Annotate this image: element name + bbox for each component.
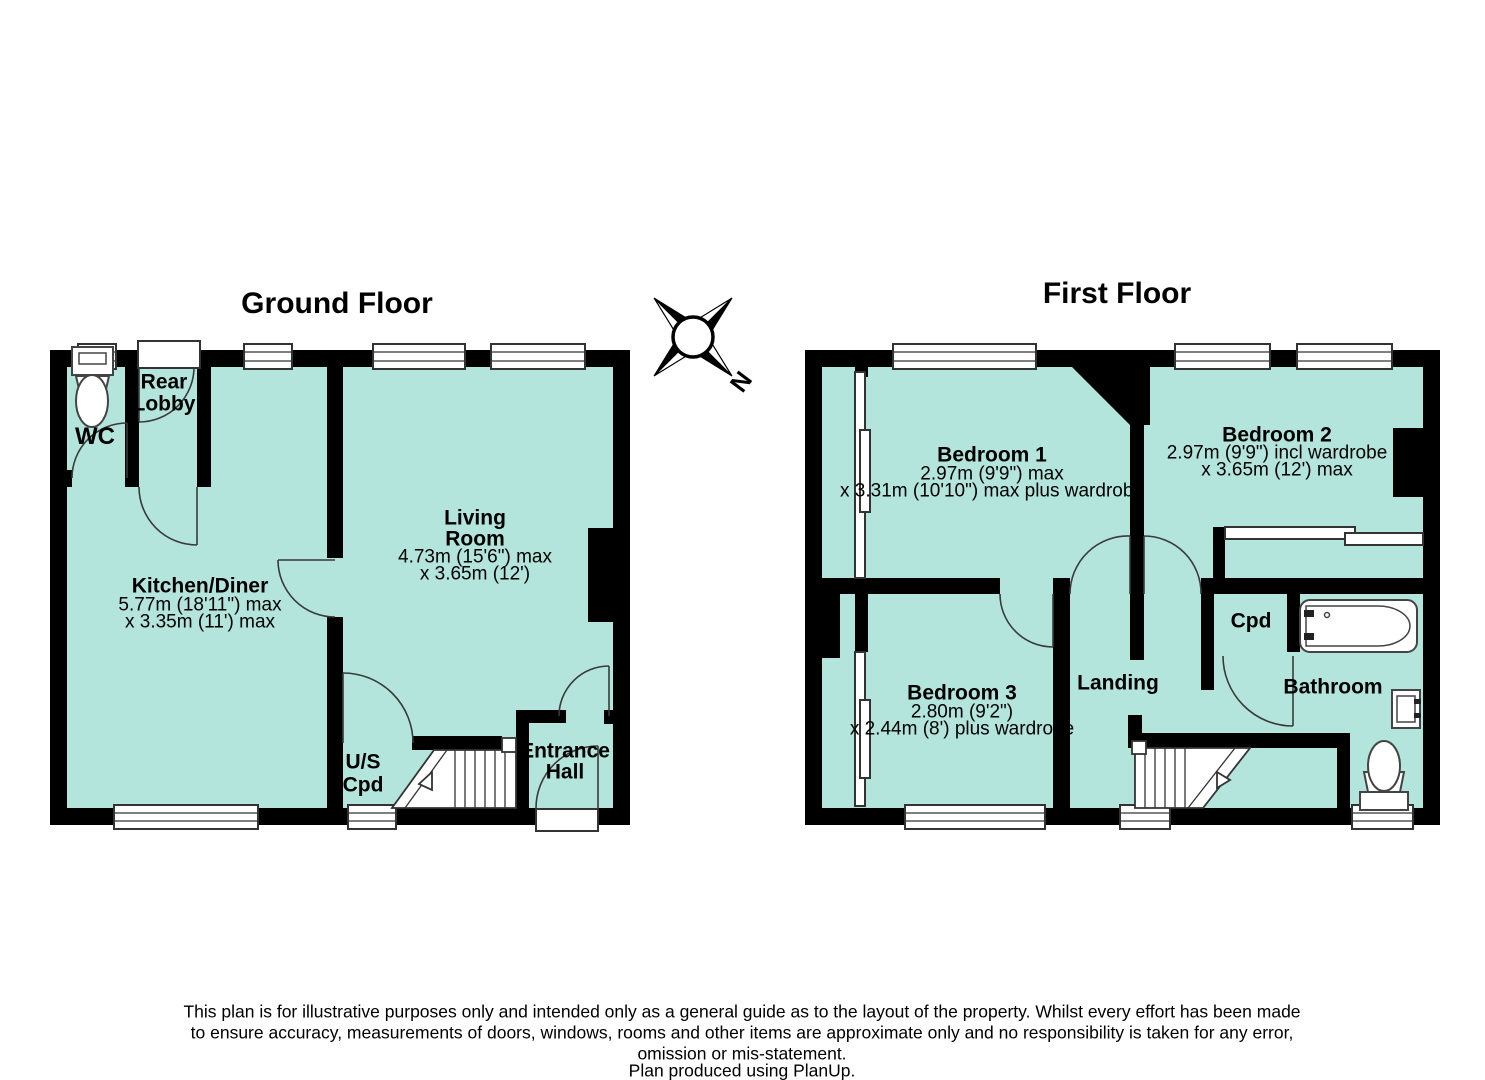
label-rear-lobby-2: Lobby [133, 394, 196, 415]
us-cpd-window [348, 805, 396, 829]
ff-stair-post [1132, 741, 1146, 754]
bedroom-3-dim2: x 2.44m (8') plus wardrobe [850, 720, 1074, 739]
floorplan-drawing [0, 0, 1485, 1080]
living-room-window-2 [491, 344, 585, 369]
label-kitchen-diner: Kitchen/Diner [132, 576, 269, 597]
ff-chimney-breast [1393, 428, 1440, 497]
bedroom1-window [893, 344, 1036, 369]
rear-lobby-back-door [138, 341, 200, 368]
disclaimer-line-4: Plan produced using PlanUp. [629, 1062, 856, 1080]
gf-stair-post [502, 738, 516, 752]
label-entrance-hall-2: Hall [546, 762, 585, 783]
label-wc: WC [75, 425, 115, 449]
bathroom-sink-fixture [1392, 690, 1421, 728]
bedroom3-window [905, 805, 1045, 829]
living-room-dim2: x 3.65m (12') [420, 565, 530, 584]
bedroom-1-dim2: x 3.31m (10'10") max plus wardrobe [840, 482, 1144, 501]
front-door [536, 809, 598, 831]
label-entrance-hall-1: Entrance [520, 741, 610, 762]
label-us-cpd-1: U/S [345, 752, 380, 773]
kitchen-bottom-window [114, 805, 258, 829]
living-room-window-1 [373, 344, 465, 369]
label-bathroom: Bathroom [1283, 677, 1382, 698]
label-us-cpd-2: Cpd [343, 775, 384, 796]
first-floor-plan [805, 344, 1440, 829]
label-landing: Landing [1077, 673, 1159, 694]
ground-floor-title: Ground Floor [241, 289, 433, 319]
label-living-room-1: Living [444, 508, 506, 529]
label-bedroom-3: Bedroom 3 [907, 683, 1017, 704]
bedroom-2-dim2: x 3.65m (12') max [1201, 461, 1352, 480]
bedroom2-wardrobe-door [1225, 527, 1355, 539]
bedroom2-window-2 [1297, 344, 1392, 369]
bath-tub-fixture [1300, 600, 1417, 652]
kitchen-top-window [244, 344, 292, 369]
bedroom2-window-1 [1175, 344, 1270, 369]
first-floor-title: First Floor [1043, 279, 1191, 309]
compass-rose [654, 298, 732, 376]
label-bedroom-1: Bedroom 1 [937, 445, 1047, 466]
gf-chimney-breast [588, 528, 630, 622]
disclaimer-line-2: to ensure accuracy, measurements of door… [191, 1024, 1294, 1042]
label-rear-lobby-1: Rear [141, 372, 188, 393]
kitchen-diner-dim2: x 3.35m (11') max [125, 613, 275, 632]
label-cpd: Cpd [1231, 611, 1272, 632]
disclaimer-line-1: This plan is for illustrative purposes o… [183, 1003, 1300, 1021]
compass-center [673, 317, 713, 357]
floorplan-page: Ground Floor First Floor WC Rear Lobby K… [0, 0, 1485, 1080]
